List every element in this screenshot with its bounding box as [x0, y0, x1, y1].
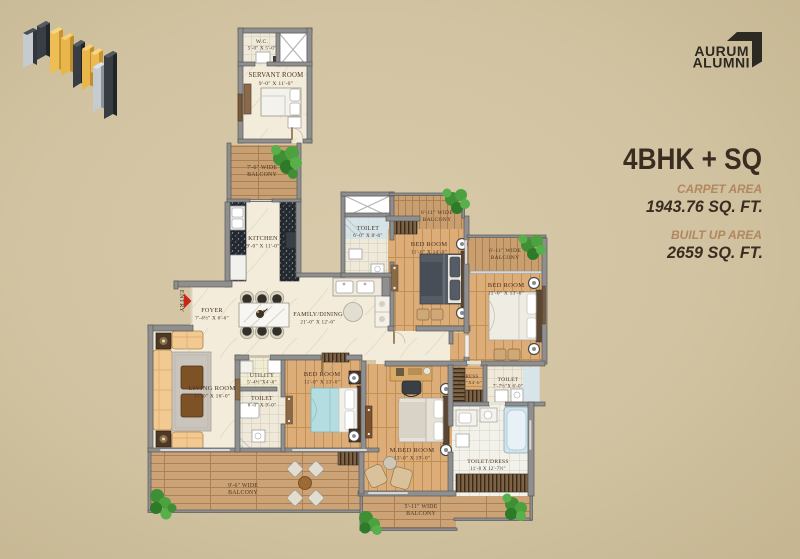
svg-text:BALCONY: BALCONY: [491, 255, 520, 261]
svg-text:KITCHEN: KITCHEN: [248, 235, 278, 242]
svg-text:FOYER: FOYER: [201, 307, 223, 314]
svg-text:FAMILY/DINING: FAMILY/DINING: [293, 311, 343, 318]
svg-text:9'-0" X 11'-0": 9'-0" X 11'-0": [259, 81, 293, 87]
svg-text:5'-11" WIDE: 5'-11" WIDE: [404, 504, 437, 510]
svg-text:BUILT UP AREA: BUILT UP AREA: [671, 230, 762, 242]
svg-text:9'-0" X 11'-0": 9'-0" X 11'-0": [246, 244, 279, 250]
svg-text:21'-0" X 12'-6": 21'-0" X 12'-6": [300, 320, 335, 326]
svg-text:BALCONY: BALCONY: [247, 172, 277, 178]
svg-text:6'-11" WIDE: 6'-11" WIDE: [421, 210, 453, 216]
svg-text:BED ROOM: BED ROOM: [411, 241, 448, 248]
svg-text:TOILET: TOILET: [498, 377, 519, 383]
svg-text:W.C.: W.C.: [256, 39, 269, 45]
svg-text:9'-6" WIDE: 9'-6" WIDE: [228, 483, 258, 489]
svg-text:5'-7"X4'-6": 5'-7"X4'-6": [458, 380, 482, 385]
svg-text:2659 SQ. FT.: 2659 SQ. FT.: [666, 244, 763, 262]
svg-text:ALUMNI: ALUMNI: [693, 55, 750, 71]
svg-text:M.BED ROOM: M.BED ROOM: [390, 447, 435, 454]
svg-text:6'-0" X 8'-6": 6'-0" X 8'-6": [353, 233, 383, 239]
svg-text:5'-4½"X4'-6": 5'-4½"X4'-6": [247, 381, 277, 386]
svg-text:TOILET: TOILET: [251, 396, 273, 402]
svg-text:13'-0" X 19'-0": 13'-0" X 19'-0": [394, 456, 430, 462]
svg-text:UTILITY: UTILITY: [250, 373, 275, 379]
svg-text:TOILET: TOILET: [357, 226, 379, 232]
svg-text:7'-7½"X 6'-0": 7'-7½"X 6'-0": [493, 385, 523, 390]
svg-text:11'-0" X 13'-6": 11'-0" X 13'-6": [488, 291, 524, 297]
svg-text:7'-6" WIDE: 7'-6" WIDE: [247, 165, 277, 171]
svg-text:1943.76 SQ. FT.: 1943.76 SQ. FT.: [646, 198, 763, 216]
svg-text:6'-11" WIDE: 6'-11" WIDE: [489, 248, 521, 254]
svg-text:11'-0" X 13'-0": 11'-0" X 13'-0": [304, 380, 340, 386]
svg-text:BALCONY: BALCONY: [228, 490, 258, 496]
svg-text:BALCONY: BALCONY: [406, 511, 436, 517]
svg-text:TOILET/DRESS: TOILET/DRESS: [467, 459, 508, 465]
svg-text:CARPET AREA: CARPET AREA: [677, 184, 762, 196]
svg-text:SERVANT ROOM: SERVANT ROOM: [249, 72, 304, 79]
svg-text:7'-4½" X 6'-6": 7'-4½" X 6'-6": [195, 315, 229, 322]
svg-text:4BHK + SQ: 4BHK + SQ: [623, 143, 762, 176]
svg-text:ENTRY: ENTRY: [178, 290, 185, 313]
svg-text:BALCONY: BALCONY: [423, 217, 452, 223]
svg-text:BED ROOM: BED ROOM: [304, 371, 341, 378]
svg-text:LIVING ROOM: LIVING ROOM: [189, 385, 236, 392]
svg-text:BED ROOM: BED ROOM: [488, 282, 525, 289]
svg-text:5'-0" X 5'-0": 5'-0" X 5'-0": [248, 47, 277, 52]
svg-text:6'-0" X 9'-0": 6'-0" X 9'-0": [248, 404, 277, 409]
svg-text:17'-0" X 16'-0": 17'-0" X 16'-0": [194, 394, 230, 400]
svg-text:11'-0" X 14'-0": 11'-0" X 14'-0": [411, 250, 447, 256]
svg-text:11'-0 X 12'-7½": 11'-0 X 12'-7½": [470, 467, 506, 472]
